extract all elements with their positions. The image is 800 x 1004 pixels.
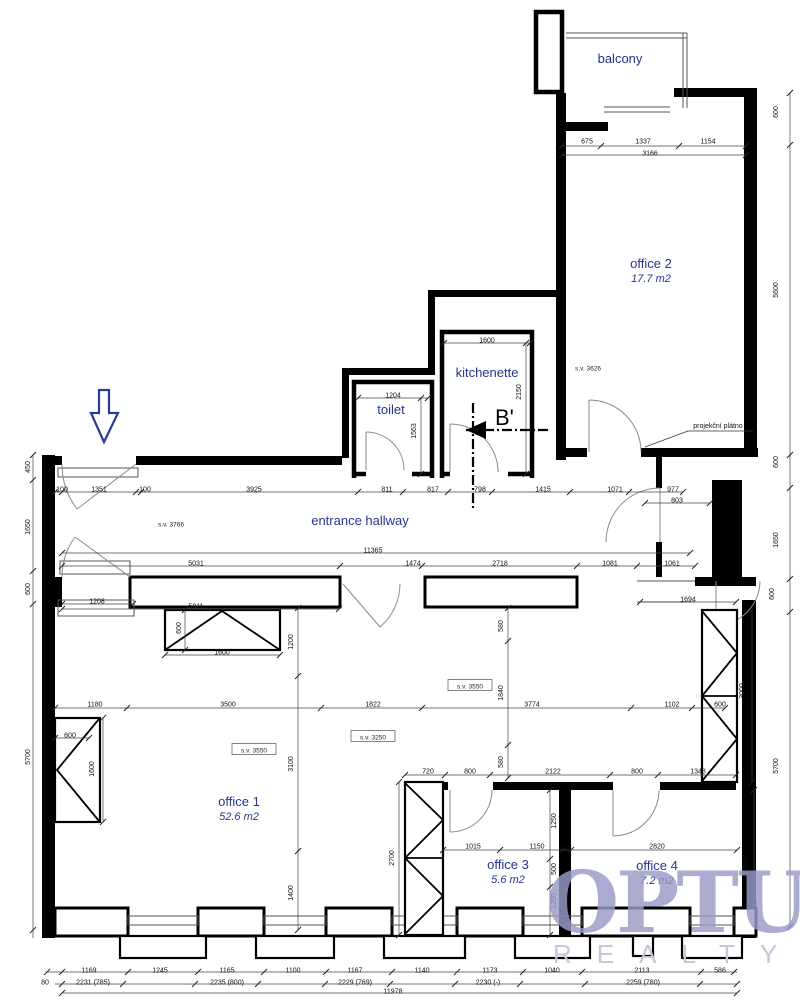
room-area-office-2: 17.7 m2 — [631, 273, 671, 285]
dimension-label: 5031 — [188, 561, 204, 568]
dimension-label: 1200 — [288, 634, 295, 650]
dimension-label: 3925 — [246, 487, 262, 494]
projection-screen-label: projekční plátno — [693, 423, 743, 430]
ceiling-height-label: s.v. 3250 — [360, 735, 386, 742]
dimension-label: 3100 — [288, 756, 295, 772]
dimension-label: 100 — [139, 487, 151, 494]
office4-door — [613, 790, 659, 836]
dimension-label: 811 — [381, 487, 392, 494]
dimension-label: 1600 — [214, 650, 230, 657]
dimension-label: 1208 — [89, 599, 105, 606]
radiator — [58, 468, 138, 477]
dimension-label: 720 — [422, 769, 434, 776]
dimension-label: 3166 — [642, 151, 658, 158]
dimension-label: 1245 — [152, 968, 168, 975]
radiator — [60, 561, 130, 574]
section-label: B' — [495, 405, 514, 430]
dimension-label: 3774 — [524, 702, 540, 709]
dimension-label: 1840 — [498, 685, 505, 701]
room-name-kitchenette: kitchenette — [456, 365, 519, 380]
dimension-label: 1600 — [89, 761, 96, 777]
dimension-label: 1351 — [91, 487, 107, 494]
dimension-label: 2230 (-) — [476, 980, 501, 987]
dimension-label: 11365 — [364, 548, 383, 555]
dimension-label: 2235 (800) — [210, 980, 244, 987]
watermark: OPTUS REALTY — [546, 853, 800, 969]
dimension-label: 1102 — [664, 702, 679, 709]
dimension-label: 1015 — [465, 844, 481, 851]
dimension-label: 450 — [25, 461, 32, 473]
dimension-label: 5700 — [25, 749, 32, 765]
entrance-arrow-icon — [91, 390, 118, 442]
dimension-label: 80 — [41, 980, 49, 987]
dimension-label: 600 — [25, 583, 32, 595]
room-name-balcony: balcony — [598, 51, 643, 66]
dimension-label: 1415 — [535, 487, 551, 494]
dimension-label: 1400 — [288, 885, 295, 901]
floor-plan-page: 6751337115431661600120410013511003925811… — [0, 0, 800, 1004]
windows-layer — [58, 33, 742, 958]
window-bay — [256, 936, 334, 958]
window-bay — [120, 936, 206, 958]
dimension-label: 1337 — [635, 139, 651, 146]
dimension-label: 2259 (780) — [626, 980, 660, 987]
dimension-label: 1204 — [385, 393, 401, 400]
dimension-label: 977 — [667, 487, 679, 494]
dimension-label: 1061 — [664, 561, 680, 568]
dimension-label: 2718 — [492, 561, 508, 568]
dimension-label: 800 — [631, 769, 643, 776]
office3-door — [450, 790, 492, 832]
room-name-toilet: toilet — [377, 402, 405, 417]
hallway-office1-door-mid — [343, 584, 400, 627]
dimension-label: 3000 — [739, 683, 746, 699]
dimension-label: 2700 — [389, 850, 396, 866]
chimney-shaft — [536, 12, 562, 92]
dimension-label: 11978 — [384, 989, 403, 996]
dimension-label: 1250 — [551, 813, 558, 829]
dimension-label: 1165 — [219, 968, 234, 975]
balcony-railing — [566, 33, 687, 108]
dimension-label: 1348 — [690, 769, 706, 776]
dimension-label: 800 — [464, 769, 476, 776]
dimension-label: 1563 — [411, 423, 418, 439]
dimension-label: 803 — [671, 498, 683, 505]
ceiling-height-label: s.v. 3550 — [457, 684, 483, 691]
room-name-office-1: office 1 — [218, 794, 260, 809]
room-area-office-1: 52.6 m2 — [219, 811, 259, 823]
dimension-label: 1173 — [482, 968, 497, 975]
dimension-label: 675 — [581, 139, 593, 146]
dimension-label: 1180 — [87, 702, 102, 709]
dimension-label: 2150 — [516, 384, 523, 400]
dimension-label: 5600 — [773, 282, 780, 298]
watermark-brand: OPTUS — [546, 853, 800, 952]
dimension-label: 1154 — [700, 139, 715, 146]
dimension-label: 2231 (785) — [76, 980, 110, 987]
dimension-label: 1822 — [365, 702, 381, 709]
leader-line — [645, 431, 753, 447]
section-arrow-icon — [466, 421, 486, 439]
dimension-label: 2820 — [649, 844, 665, 851]
dimension-label: 1081 — [602, 561, 618, 568]
dimension-label: 600 — [769, 588, 776, 600]
watermark-subbrand: REALTY — [553, 939, 800, 969]
hallway-right-door — [606, 488, 660, 542]
dimension-label: 1150 — [529, 844, 544, 851]
room-name-office-2: office 2 — [630, 256, 672, 271]
dimension-label: 3500 — [220, 702, 236, 709]
dimension-label: 817 — [427, 487, 439, 494]
dimension-label: 1694 — [680, 597, 696, 604]
ceiling-height-label: s.v. 3626 — [575, 366, 601, 373]
toilet-door — [366, 432, 404, 470]
dimension-label: 600 — [714, 702, 726, 709]
dimension-label: 5700 — [773, 758, 780, 774]
dimension-label: 2122 — [545, 769, 561, 776]
dimension-label: 5011 — [188, 604, 203, 611]
dimension-label: 2229 (769) — [338, 980, 372, 987]
dimension-label: 580 — [498, 756, 505, 768]
ceiling-height-label: s.v. 3766 — [158, 522, 184, 529]
ceiling-height-label: s.v. 3550 — [241, 748, 267, 755]
window-bay — [384, 936, 465, 958]
dimension-label: 100 — [56, 487, 68, 494]
room-name-office-3: office 3 — [487, 857, 529, 872]
dimension-label: 600 — [773, 106, 780, 118]
dimension-label: 580 — [498, 620, 505, 632]
dimension-label: 1169 — [81, 968, 96, 975]
dimension-label: 798 — [474, 487, 486, 494]
dimension-label: 1100 — [285, 968, 300, 975]
window — [128, 916, 198, 925]
dimension-label: 600 — [773, 456, 780, 468]
dimension-label: 1650 — [773, 532, 780, 548]
dimension-label: 600 — [176, 622, 183, 634]
office2-door — [589, 400, 641, 452]
dimension-label: 600 — [64, 733, 76, 740]
dimension-label: 1071 — [607, 487, 623, 494]
room-name-entrance-hallway: entrance hallway — [311, 513, 409, 528]
ceiling-height-labels-layer: s.v. 3766s.v. 3626s.v. 3550s.v. 3250s.v.… — [158, 366, 601, 755]
floor-plan-canvas: 6751337115431661600120410013511003925811… — [0, 0, 800, 1004]
hallway-office1-door-left — [62, 537, 130, 577]
dimension-label: 1650 — [25, 519, 32, 535]
dimension-label: 1474 — [405, 561, 421, 568]
dimension-label: 1140 — [414, 968, 429, 975]
dimension-label: 1167 — [347, 968, 362, 975]
room-area-office-3: 5.6 m2 — [491, 874, 525, 886]
projection-screen-callout: projekční plátno — [645, 423, 753, 447]
window — [264, 916, 326, 925]
dimension-label: 1600 — [479, 338, 495, 345]
balcony-window — [604, 107, 670, 112]
